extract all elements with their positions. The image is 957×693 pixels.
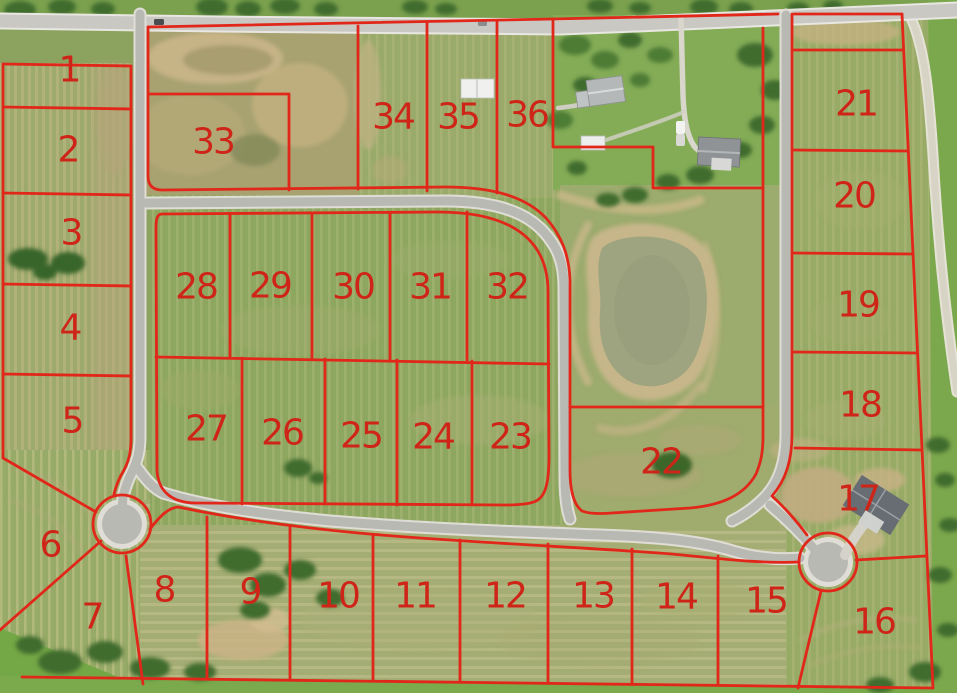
plat-map-screenshot: 1234567891011121314151617181920212223242… [0,0,957,693]
lot-number-21: 21 [835,84,877,125]
lot-number-14: 14 [655,577,697,618]
lot-number-11: 11 [394,576,436,617]
shed-lot-35 [461,79,494,98]
lot-number-16: 16 [853,602,895,643]
lot-number-6: 6 [40,525,61,566]
car-gray [676,134,685,146]
lot-number-15: 15 [745,581,787,622]
lot-number-18: 18 [839,385,881,426]
lot-number-1: 1 [59,50,80,91]
lot-number-36: 36 [506,95,548,136]
lot-number-35: 35 [437,97,479,138]
small-pond [183,45,273,75]
lot-number-33: 33 [192,122,234,163]
car-on-highway [154,19,164,25]
lot-number-10: 10 [317,576,359,617]
lot-number-26: 26 [261,413,303,454]
lot-number-25: 25 [340,416,382,457]
lot-number-9: 9 [240,572,261,613]
lot-number-13: 13 [572,576,614,617]
lot-number-29: 29 [249,266,291,307]
lot-number-32: 32 [486,267,528,308]
lot-number-23: 23 [489,417,531,458]
lot-number-7: 7 [82,597,103,638]
lot-number-30: 30 [332,267,374,308]
lot-number-34: 34 [372,97,414,138]
lot-number-3: 3 [61,213,82,254]
lot-number-28: 28 [175,267,217,308]
lot-number-8: 8 [154,570,175,611]
lot-number-24: 24 [412,417,454,458]
lot-number-20: 20 [833,176,875,217]
plat-aerial-image: 1234567891011121314151617181920212223242… [0,0,957,693]
lot-number-17: 17 [837,479,879,520]
lot-number-5: 5 [62,401,83,442]
car-white [676,121,685,134]
lot-number-12: 12 [484,576,526,617]
lot-number-27: 27 [185,409,227,450]
lot-number-22: 22 [640,442,682,483]
lot-number-2: 2 [58,130,79,171]
lot-number-19: 19 [837,285,879,326]
lot-number-31: 31 [409,267,451,308]
lot-number-4: 4 [60,308,81,349]
pond [586,223,718,400]
